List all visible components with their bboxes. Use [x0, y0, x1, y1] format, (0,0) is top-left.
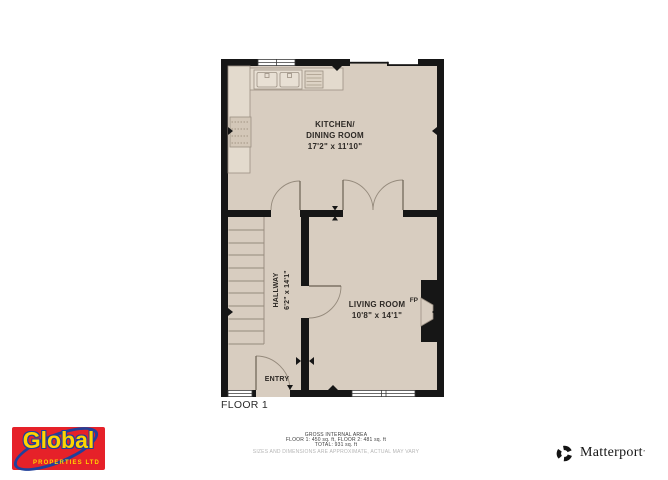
hallway-dimensions: 6'2" x 14'1" [284, 270, 291, 310]
agency-subtitle: PROPERTIES LTD [33, 460, 100, 466]
global-properties-logo: Global PROPERTIES LTD [12, 427, 105, 470]
area-disclaimer: SIZES AND DIMENSIONS ARE APPROXIMATE, AC… [186, 450, 486, 455]
area-summary: GROSS INTERNAL AREA FLOOR 1: 450 sq. ft,… [186, 433, 486, 455]
radiator [230, 117, 251, 147]
kitchen-window [258, 59, 295, 65]
fireplace-label: FP [410, 297, 419, 304]
agency-name: Global [12, 427, 105, 454]
kitchen-label-line2: DINING ROOM [306, 131, 364, 140]
matterport-wordmark: Matterport [580, 445, 643, 461]
matterport-icon [556, 445, 573, 462]
kitchen-label-line1: KITCHEN/ [315, 120, 355, 129]
hallway-label: HALLWAY [273, 272, 280, 307]
living-room-dimensions: 10'8" x 14'1" [352, 311, 402, 320]
area-summary-line2: TOTAL: 931 sq. ft [186, 443, 486, 448]
fireplace [421, 280, 444, 342]
hallway-window [228, 390, 252, 396]
floor-plan: KITCHEN/ DINING ROOM 17'2" x 11'10" LIVI… [0, 0, 668, 472]
matterport-logo: Matterport’ [556, 443, 645, 463]
entry-label: ENTRY [265, 376, 290, 383]
floor-area [221, 59, 444, 397]
drainer [305, 71, 323, 88]
floor-title: FLOOR 1 [221, 399, 268, 411]
kitchen-dimensions: 17'2" x 11'10" [308, 142, 363, 151]
matterport-trademark: ’ [643, 449, 645, 457]
living-room-label: LIVING ROOM [349, 300, 406, 309]
living-room-window [352, 390, 415, 396]
sink [254, 70, 302, 89]
